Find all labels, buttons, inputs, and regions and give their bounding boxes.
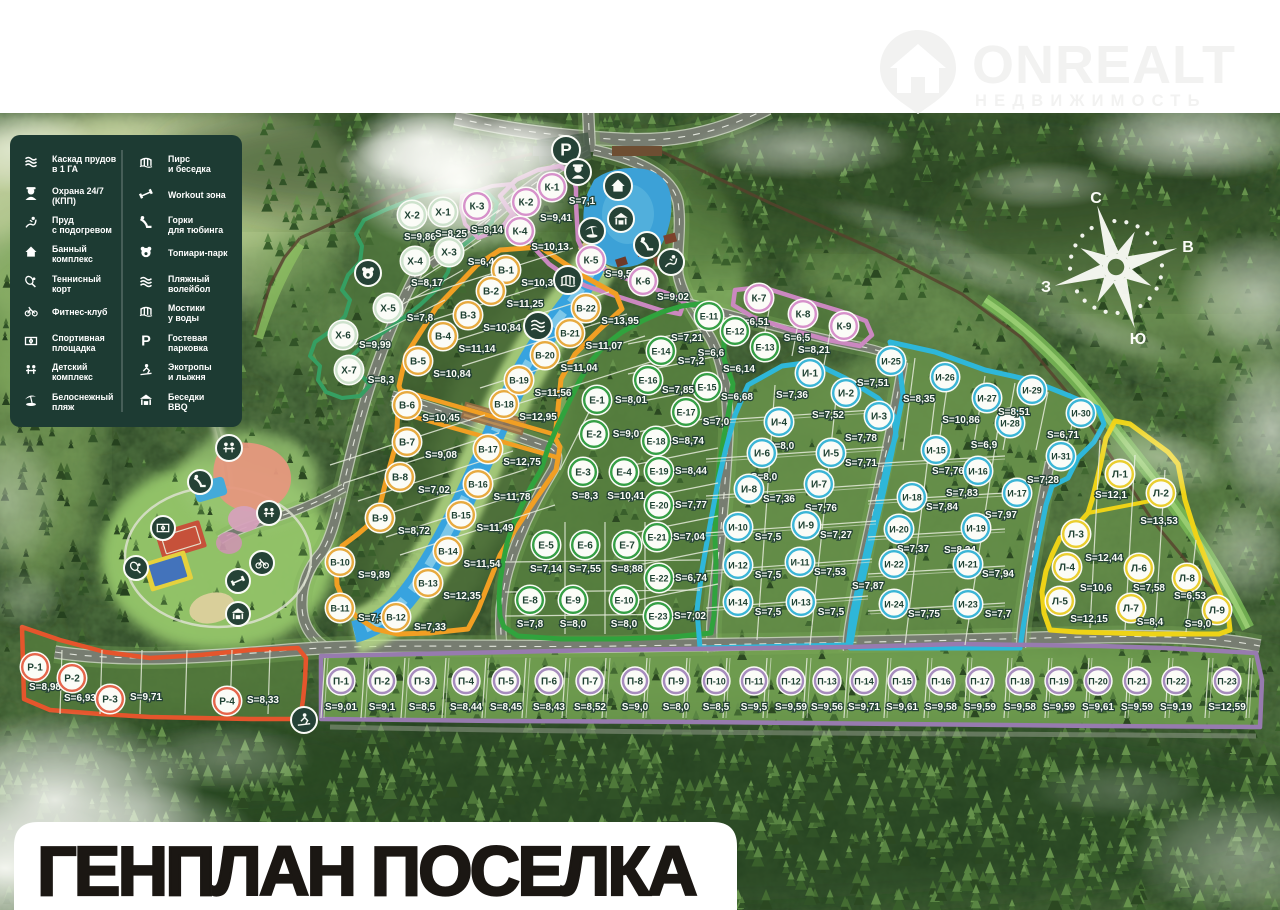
- svg-text:площадка: площадка: [52, 343, 96, 353]
- svg-text:Workout зона: Workout зона: [168, 190, 226, 200]
- svg-text:Пляжный: Пляжный: [168, 274, 210, 284]
- svg-text:парковка: парковка: [168, 343, 208, 353]
- svg-text:BBQ: BBQ: [168, 402, 188, 412]
- svg-text:пляж: пляж: [52, 402, 75, 412]
- svg-text:Детский: Детский: [52, 362, 87, 372]
- svg-text:P: P: [141, 334, 151, 350]
- svg-text:волейбол: волейбол: [168, 284, 210, 294]
- svg-text:Экотропы: Экотропы: [168, 362, 212, 372]
- svg-text:Пруд: Пруд: [52, 215, 74, 225]
- svg-text:Пирс: Пирс: [168, 154, 190, 164]
- svg-text:комплекс: комплекс: [52, 254, 93, 264]
- svg-text:и беседка: и беседка: [168, 164, 211, 174]
- svg-text:комплекс: комплекс: [52, 372, 93, 382]
- svg-text:и лыжня: и лыжня: [168, 372, 206, 382]
- svg-text:корт: корт: [52, 284, 72, 294]
- svg-text:Банный: Банный: [52, 244, 87, 254]
- svg-text:Спортивная: Спортивная: [52, 333, 105, 343]
- svg-text:НЕДВИЖИМОСТЬ: НЕДВИЖИМОСТЬ: [975, 92, 1207, 110]
- svg-text:Белоснежный: Белоснежный: [52, 392, 113, 402]
- svg-text:Каскад прудов: Каскад прудов: [52, 154, 117, 164]
- svg-text:Беседки: Беседки: [168, 392, 204, 402]
- svg-text:в 1 ГА: в 1 ГА: [52, 164, 79, 174]
- svg-text:Фитнес-клуб: Фитнес-клуб: [52, 307, 108, 317]
- svg-text:Топиари-парк: Топиари-парк: [168, 248, 228, 258]
- svg-text:Горки: Горки: [168, 215, 193, 225]
- svg-text:(КПП): (КПП): [52, 196, 76, 206]
- svg-text:ONREALT: ONREALT: [972, 35, 1236, 95]
- svg-text:с подогревом: с подогревом: [52, 225, 112, 235]
- svg-text:для тюбинга: для тюбинга: [168, 225, 223, 235]
- svg-text:ГЕНПЛАН ПОСЕЛКА: ГЕНПЛАН ПОСЕЛКА: [37, 832, 696, 910]
- svg-text:Гостевая: Гостевая: [168, 333, 207, 343]
- svg-text:Охрана 24/7: Охрана 24/7: [52, 186, 104, 196]
- svg-text:Мостики: Мостики: [168, 303, 205, 313]
- svg-text:Теннисный: Теннисный: [52, 274, 101, 284]
- svg-text:у воды: у воды: [168, 313, 199, 323]
